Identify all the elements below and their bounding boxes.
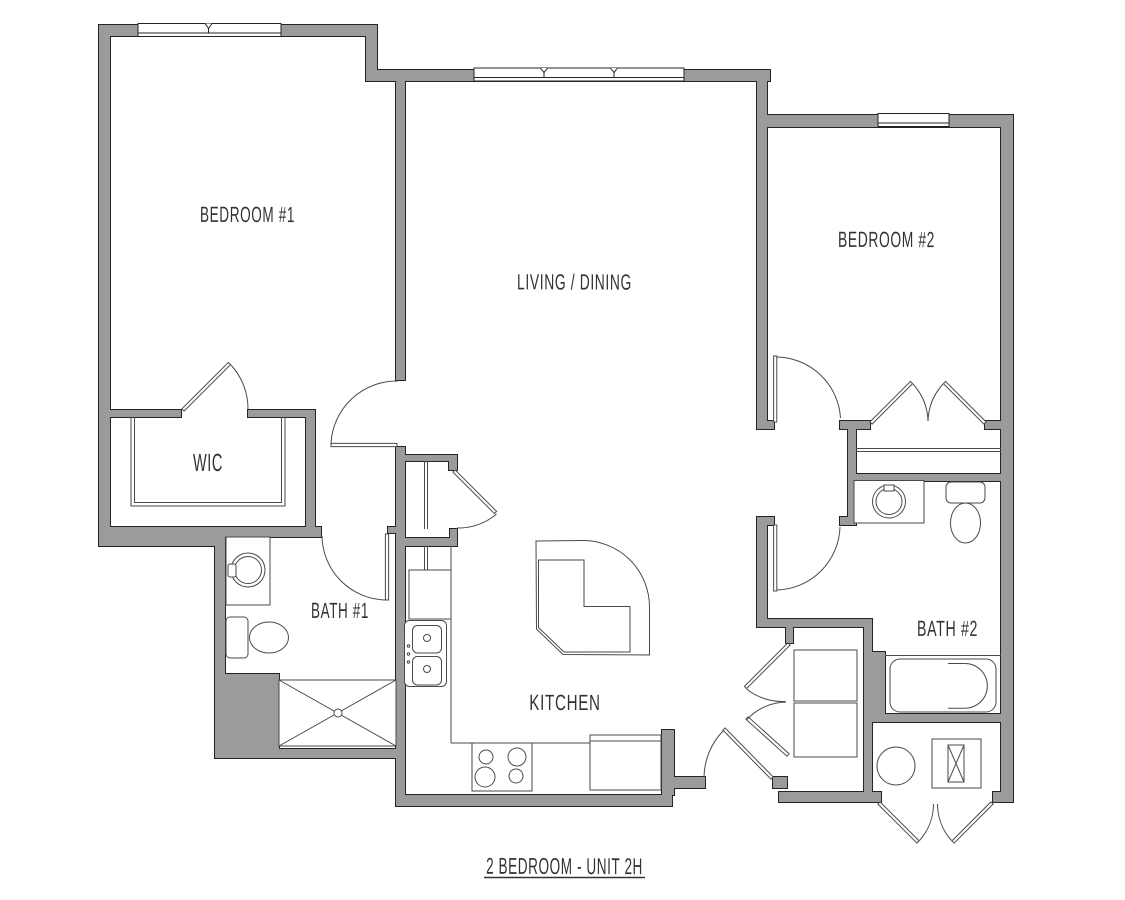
svg-text:WIC: WIC [193, 450, 223, 477]
svg-text:BATH #1: BATH #1 [311, 597, 369, 622]
svg-text:2 BEDROOM - UNIT 2H: 2 BEDROOM - UNIT 2H [486, 853, 643, 879]
svg-text:BATH #2: BATH #2 [917, 616, 978, 641]
svg-text:BEDROOM #2: BEDROOM #2 [838, 227, 935, 252]
svg-text:BEDROOM #1: BEDROOM #1 [200, 201, 295, 227]
svg-text:KITCHEN: KITCHEN [529, 691, 600, 716]
svg-text:LIVING / DINING: LIVING / DINING [517, 269, 632, 294]
